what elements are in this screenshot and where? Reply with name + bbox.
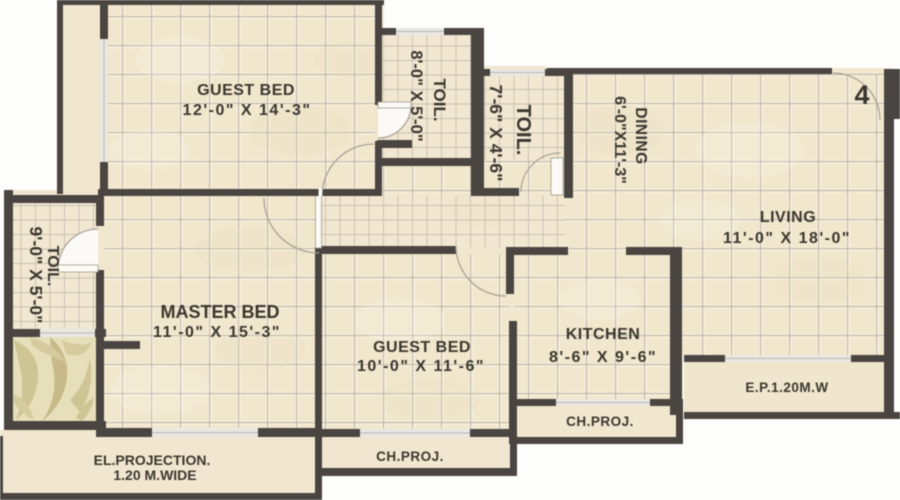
svg-text:4: 4 xyxy=(854,80,869,110)
svg-text:TOIL.: TOIL. xyxy=(512,105,534,156)
svg-text:9'-0" X 5'-0": 9'-0" X 5'-0" xyxy=(26,227,46,324)
svg-text:E.P.1.20M.W: E.P.1.20M.W xyxy=(745,380,828,395)
svg-text:12'-0" X 14'-3": 12'-0" X 14'-3" xyxy=(183,102,312,119)
svg-text:10'-0" X 11'-6": 10'-0" X 11'-6" xyxy=(357,358,485,375)
svg-text:11'-0" X 18'-0": 11'-0" X 18'-0" xyxy=(723,230,851,247)
svg-text:CH.PROJ.: CH.PROJ. xyxy=(376,449,444,464)
svg-text:KITCHEN: KITCHEN xyxy=(566,326,641,343)
svg-text:6'-0"X11'-3": 6'-0"X11'-3" xyxy=(611,96,628,184)
svg-text:GUEST BED: GUEST BED xyxy=(373,339,471,356)
svg-text:GUEST BED: GUEST BED xyxy=(197,82,295,99)
svg-text:LIVING: LIVING xyxy=(760,209,816,226)
svg-text:8'-6" X 9'-6": 8'-6" X 9'-6" xyxy=(549,349,657,366)
svg-text:MASTER BED: MASTER BED xyxy=(160,302,279,322)
svg-text:11'-0" X 15'-3": 11'-0" X 15'-3" xyxy=(153,324,281,341)
svg-text:TOIL.: TOIL. xyxy=(430,78,449,121)
svg-text:DINING: DINING xyxy=(632,107,649,164)
svg-text:EL.PROJECTION.: EL.PROJECTION. xyxy=(94,452,211,468)
svg-text:1.20 M.WIDE: 1.20 M.WIDE xyxy=(113,467,196,483)
svg-text:8'-0" X 5'-0": 8'-0" X 5'-0" xyxy=(407,50,425,141)
svg-text:7'-6" X 4'-6": 7'-6" X 4'-6" xyxy=(486,85,506,182)
svg-text:CH.PROJ.: CH.PROJ. xyxy=(566,414,634,429)
